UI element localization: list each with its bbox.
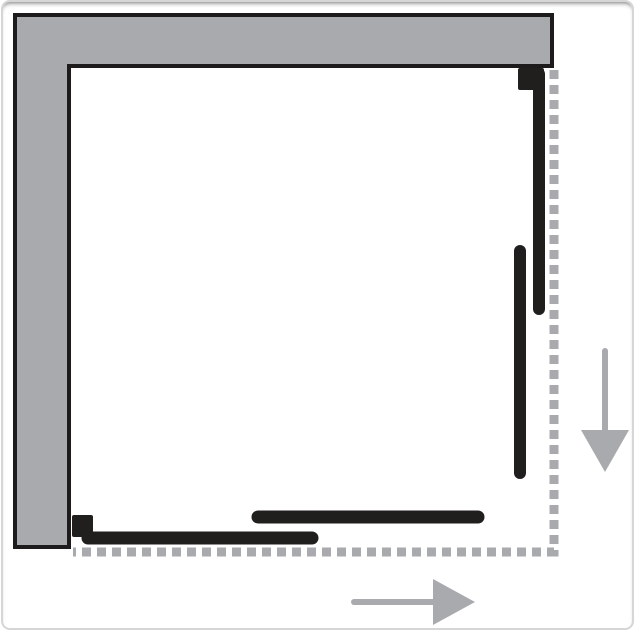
slide-direction-right-arrow-head <box>433 579 475 625</box>
wall-l-shape <box>15 15 552 547</box>
diagram-stage <box>0 0 636 637</box>
bottom-left-wall-profile-block <box>72 515 93 537</box>
diagram-canvas <box>3 2 634 630</box>
enclosure-open-sides-dashed <box>73 70 554 552</box>
diagram-card <box>1 0 634 630</box>
slide-direction-down-arrow-head <box>581 430 629 472</box>
